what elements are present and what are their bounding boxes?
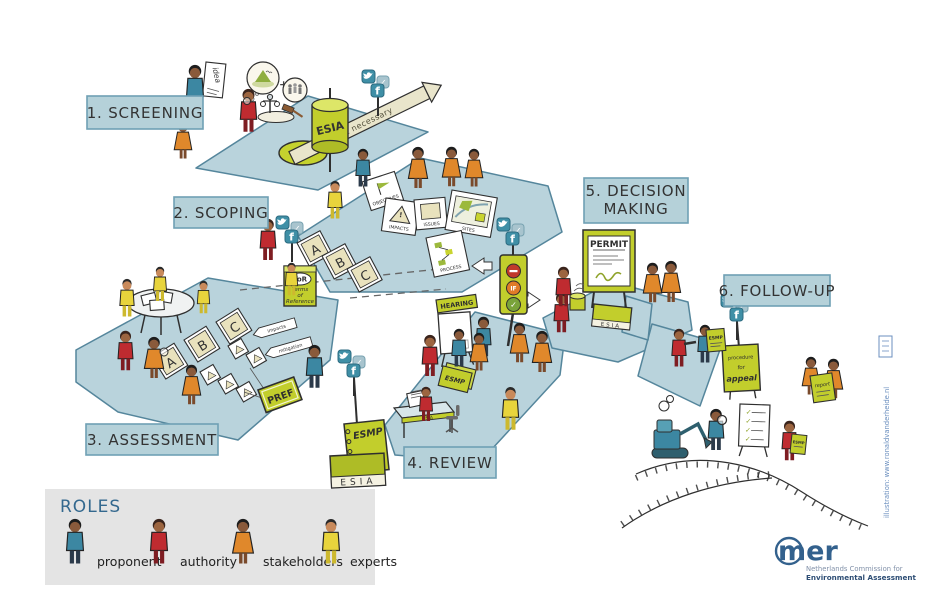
appeal-sign: procedure for appeal (722, 344, 761, 400)
assessment-label: 3. ASSESSMENT (87, 431, 217, 449)
mer-logo: mer Netherlands Commission for Environme… (776, 536, 917, 582)
credit: illustration: www.ronaldvanderheide.nl (879, 336, 892, 518)
smoke-puff (659, 396, 674, 412)
checklist-flipchart: ✓ ✓ ✓ ✓ (738, 404, 770, 457)
magnifier-icon (160, 348, 168, 356)
screening-label: 1. SCREENING (87, 104, 204, 122)
hearing-sign: HEARING (436, 294, 477, 312)
eia-process-illustration: ✓ f + (0, 0, 936, 596)
svg-text:Reference: Reference (286, 299, 315, 305)
svg-text:✓: ✓ (510, 301, 517, 310)
svg-text:PERMIT: PERMIT (590, 240, 629, 250)
followup-label: 6. FOLLOW-UP (719, 282, 836, 300)
legend-label-stakeholders: stakeholders (263, 554, 343, 569)
svg-text:✓: ✓ (745, 426, 751, 434)
idea-paper: idea (202, 62, 225, 98)
logo-line2: Environmental Assessment (806, 573, 917, 582)
decision-label-line1: 5. DECISION (586, 182, 687, 200)
legend-label-experts: experts (350, 554, 397, 569)
ground-curves (622, 460, 868, 530)
svg-text:appeal: appeal (726, 373, 757, 384)
report-paper: report (810, 373, 836, 403)
social-icons-review (338, 350, 365, 396)
svg-text:✓: ✓ (745, 435, 751, 443)
legend-title: ROLES (60, 497, 121, 517)
sites-map-paper: SITES (445, 190, 497, 237)
scoping-label: 2. SCOPING (173, 204, 268, 222)
esmp-board-handshake: ESMP (706, 328, 726, 351)
person-authority (240, 89, 256, 132)
logo-line1: Netherlands Commission for (806, 565, 903, 573)
roles-legend: ROLES proponent authority stakeholders e… (45, 489, 397, 585)
credit-text: illustration: www.ronaldvanderheide.nl (883, 387, 891, 518)
landscape-bubble (247, 62, 279, 94)
esia-book-decision: ESIA (592, 304, 632, 331)
diagram-svg: ✓ f + (0, 0, 936, 596)
if-light-label: IF (510, 286, 516, 293)
illustrator-mark (879, 336, 892, 357)
process-paper: PROCESS (426, 231, 470, 278)
excavator (652, 420, 712, 458)
esia-book: ESIA (330, 453, 386, 489)
issues-paper: ISSUES (414, 197, 447, 230)
svg-text:for: for (737, 365, 746, 371)
esmp-board-monitor: ESMP (790, 434, 807, 454)
person-expert (120, 279, 134, 317)
review-label: 4. REVIEW (407, 454, 492, 472)
mer-logo-text: mer (778, 536, 838, 567)
svg-text:ESIA: ESIA (340, 477, 377, 489)
legend-label-authority: authority (180, 554, 238, 569)
magnifier-icon (244, 98, 251, 105)
svg-text:✓: ✓ (745, 417, 751, 425)
decision-label-line2: MAKING (603, 200, 668, 218)
people-bubble (283, 78, 307, 102)
magnifier-icon (718, 416, 727, 425)
svg-text:✓: ✓ (746, 408, 752, 416)
legend-label-proponent: proponent (97, 554, 162, 569)
person-proponent (306, 345, 322, 388)
